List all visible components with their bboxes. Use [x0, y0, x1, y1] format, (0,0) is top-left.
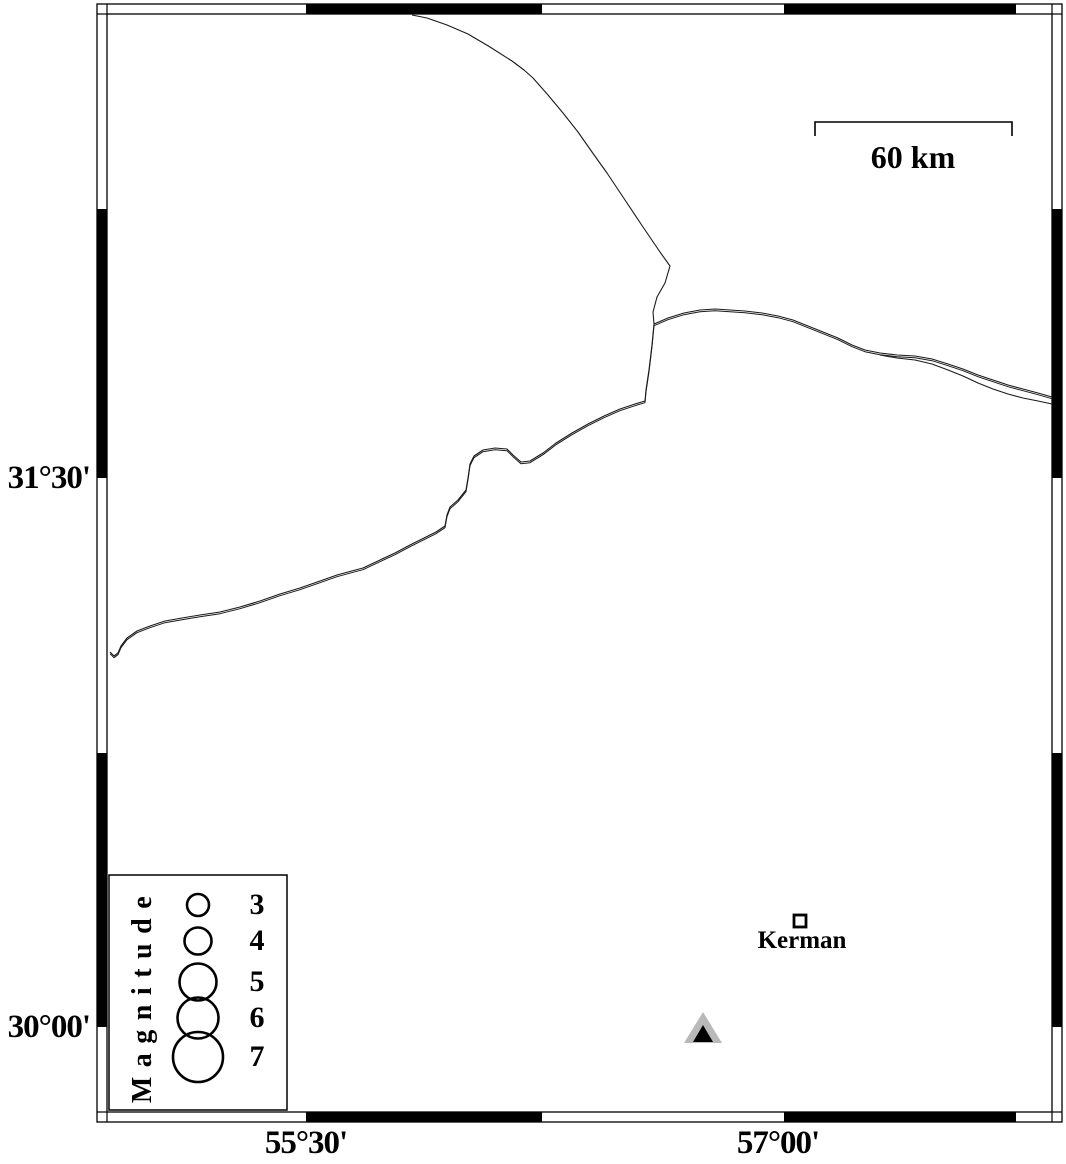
frame-tick-right: [1052, 753, 1062, 1027]
latitude-label-31-30: 31°30': [0, 457, 90, 499]
frame-tick-left: [97, 209, 107, 478]
frame-tick-right: [1052, 209, 1062, 478]
legend-value-mag4: 4: [235, 920, 279, 962]
frame-tick-top: [306, 4, 542, 14]
longitude-label-55-30: 55°30': [206, 1122, 406, 1164]
seismicity-map-page: { "page": {"width": 1066, "height": 1160…: [0, 0, 1066, 1160]
legend-value-mag7: 7: [235, 1036, 279, 1078]
fault-line-north: [412, 15, 670, 324]
latitude-label-30-00: 30°00': [0, 1006, 90, 1048]
fault-line-southwest: [110, 324, 654, 656]
fault-line-east: [654, 309, 1052, 397]
longitude-label-57-00: 57°00': [678, 1122, 878, 1164]
frame-tick-top: [784, 4, 1016, 14]
legend-title-magnitude: Magnitude: [128, 887, 158, 1103]
city-marker-square: [794, 915, 806, 927]
city-label-kerman: Kerman: [717, 927, 887, 955]
fault-line-east-branch: [880, 355, 1052, 404]
frame-tick-left: [97, 753, 107, 1027]
scalebar-bracket: [815, 122, 1012, 136]
frame-tick-bottom: [306, 1112, 542, 1122]
scalebar-label: 60 km: [813, 136, 1013, 178]
legend-value-mag6: 6: [235, 997, 279, 1039]
fault-line-southwest-strand2: [110, 326, 654, 658]
frame-tick-bottom: [784, 1112, 1016, 1122]
fault-line-east-strand2: [654, 311, 1052, 399]
